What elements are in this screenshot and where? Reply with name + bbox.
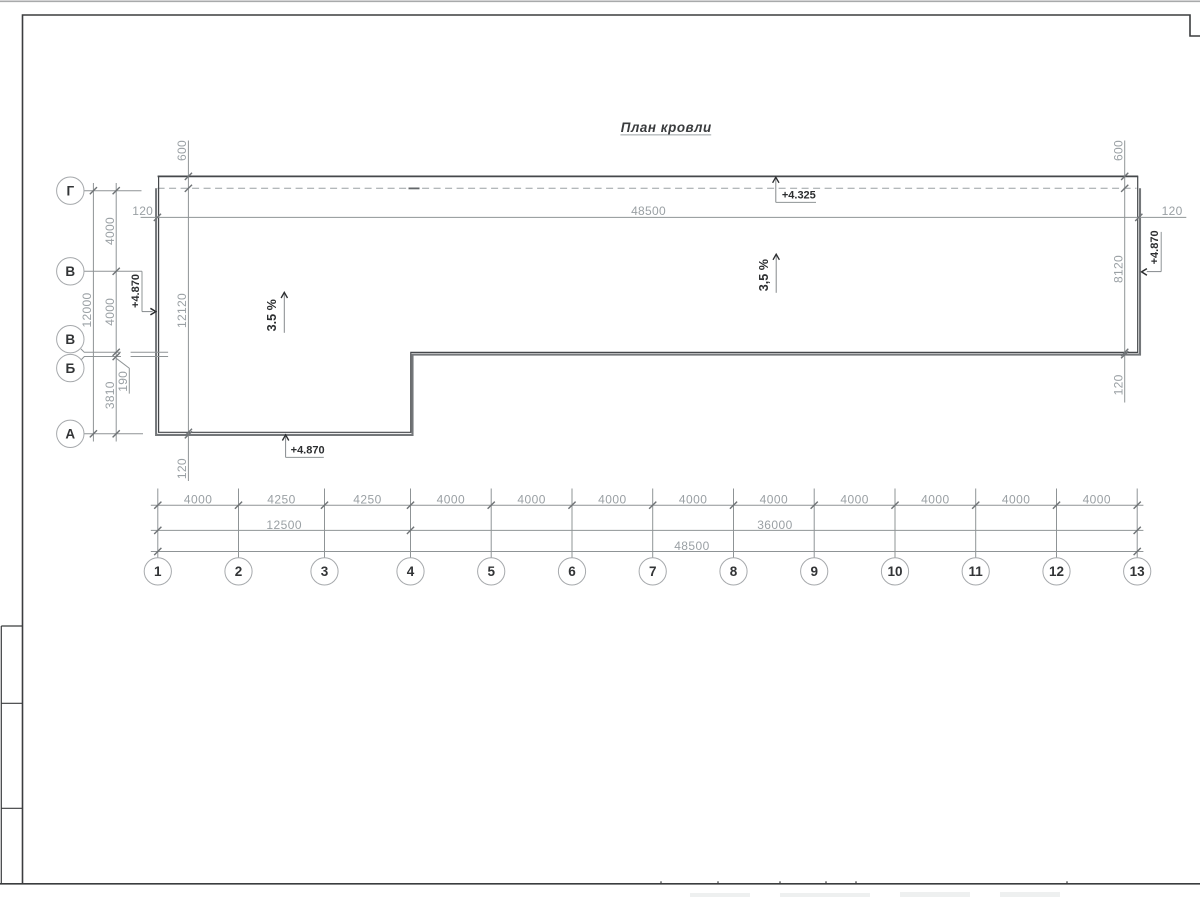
svg-text:Б: Б xyxy=(65,361,75,376)
svg-text:120: 120 xyxy=(175,458,189,479)
svg-text:4000: 4000 xyxy=(598,493,627,507)
svg-text:4250: 4250 xyxy=(267,493,296,507)
svg-text:190: 190 xyxy=(116,371,130,392)
svg-text:3,5 %: 3,5 % xyxy=(757,259,771,291)
svg-text:48500: 48500 xyxy=(674,539,710,553)
svg-text:12: 12 xyxy=(1049,564,1064,579)
svg-text:План кровли: План кровли xyxy=(621,120,712,135)
svg-text:36000: 36000 xyxy=(757,518,793,532)
svg-text:48500: 48500 xyxy=(631,204,666,218)
svg-text:4000: 4000 xyxy=(1002,493,1031,507)
svg-text:4000: 4000 xyxy=(103,298,117,326)
svg-text:4000: 4000 xyxy=(1083,493,1112,507)
svg-text:120: 120 xyxy=(132,204,153,218)
svg-text:120: 120 xyxy=(1162,204,1183,218)
svg-text:4000: 4000 xyxy=(679,493,708,507)
svg-text:10: 10 xyxy=(887,564,902,579)
svg-text:В: В xyxy=(65,264,75,279)
svg-text:4000: 4000 xyxy=(184,493,213,507)
svg-text:+4.870: +4.870 xyxy=(130,274,142,308)
svg-text:4000: 4000 xyxy=(840,493,869,507)
svg-text:8: 8 xyxy=(730,564,738,579)
svg-text:4000: 4000 xyxy=(437,493,466,507)
svg-text:8120: 8120 xyxy=(1112,255,1126,283)
svg-text:3: 3 xyxy=(321,564,329,579)
svg-text:13: 13 xyxy=(1130,564,1146,579)
svg-text:5: 5 xyxy=(487,564,495,579)
svg-text:4000: 4000 xyxy=(921,493,950,507)
svg-text:2: 2 xyxy=(235,564,243,579)
svg-text:7: 7 xyxy=(649,564,657,579)
svg-text:4000: 4000 xyxy=(760,493,789,507)
svg-text:+4.870: +4.870 xyxy=(1149,230,1161,264)
svg-text:12120: 12120 xyxy=(175,293,189,328)
svg-text:4250: 4250 xyxy=(353,493,382,507)
svg-text:Г: Г xyxy=(66,184,74,199)
svg-text:600: 600 xyxy=(1112,140,1126,161)
svg-text:600: 600 xyxy=(175,140,189,161)
svg-text:А: А xyxy=(65,427,75,442)
svg-text:12500: 12500 xyxy=(266,518,302,532)
svg-text:6: 6 xyxy=(568,564,576,579)
svg-text:+4.325: +4.325 xyxy=(782,190,816,202)
svg-text:4000: 4000 xyxy=(103,217,117,245)
svg-text:4000: 4000 xyxy=(517,493,546,507)
svg-text:+4.870: +4.870 xyxy=(291,444,325,456)
svg-text:4: 4 xyxy=(407,564,415,579)
svg-text:В: В xyxy=(65,332,75,347)
svg-text:3810: 3810 xyxy=(103,381,117,409)
svg-text:11: 11 xyxy=(969,564,984,579)
svg-text:9: 9 xyxy=(810,564,818,579)
svg-text:1: 1 xyxy=(154,564,162,579)
svg-text:120: 120 xyxy=(1112,374,1126,395)
svg-text:12000: 12000 xyxy=(80,293,94,328)
svg-text:3.5 %: 3.5 % xyxy=(265,299,279,331)
